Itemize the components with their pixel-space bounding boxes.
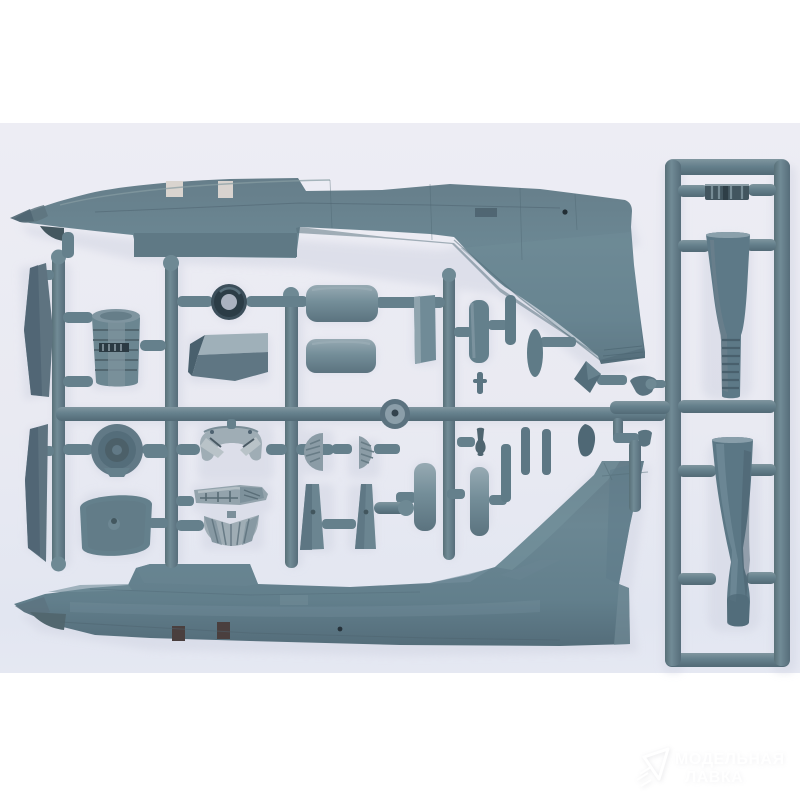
svg-text:МОДЕЛЬНАЯ: МОДЕЛЬНАЯ — [675, 751, 784, 768]
svg-text:ЛАВКА: ЛАВКА — [685, 769, 743, 786]
